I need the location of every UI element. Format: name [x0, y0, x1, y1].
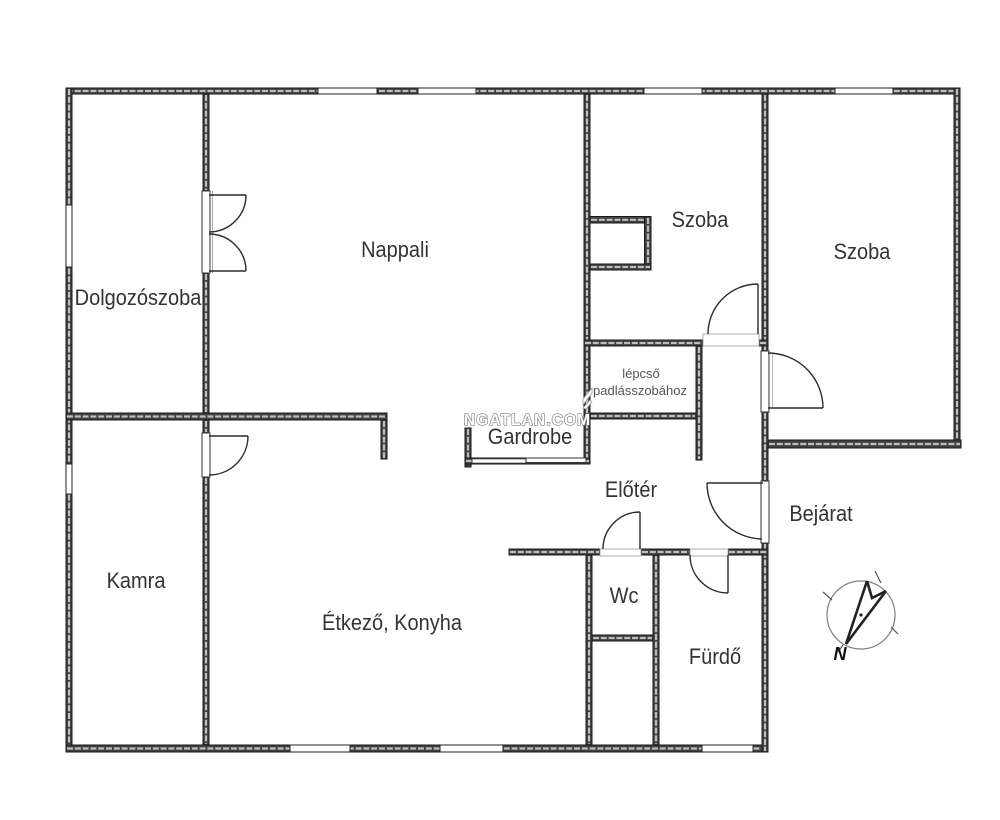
svg-text:padlásszobához: padlásszobához — [593, 383, 687, 398]
svg-text:Bejárat: Bejárat — [789, 501, 852, 526]
svg-text:Wc: Wc — [610, 583, 639, 608]
svg-text:Nappali: Nappali — [361, 237, 429, 262]
svg-text:lépcső: lépcső — [622, 366, 660, 381]
svg-text:Előtér: Előtér — [605, 477, 657, 502]
svg-text:Fürdő: Fürdő — [689, 644, 741, 669]
svg-text:Gardrobe: Gardrobe — [488, 424, 572, 449]
svg-text:Szoba: Szoba — [672, 207, 729, 232]
svg-text:Kamra: Kamra — [107, 568, 166, 593]
svg-text:Szoba: Szoba — [834, 239, 891, 264]
svg-text:N: N — [834, 644, 848, 664]
svg-text:Étkező, Konyha: Étkező, Konyha — [322, 609, 462, 635]
svg-text:Dolgozószoba: Dolgozószoba — [75, 285, 202, 310]
